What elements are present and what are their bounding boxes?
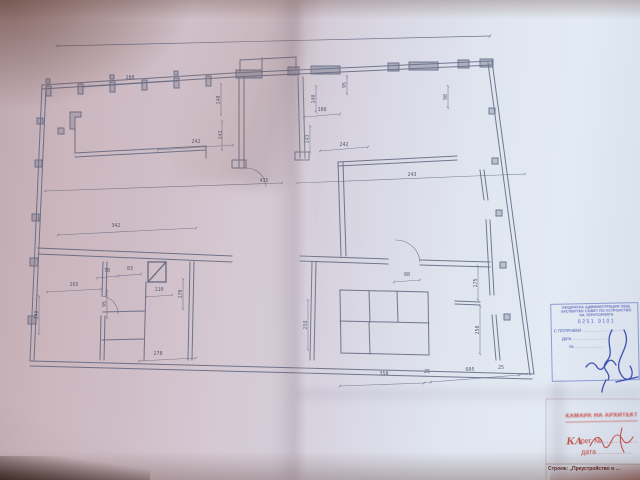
- dimension-label: 25: [424, 369, 430, 375]
- left-wall-pilasters: [28, 118, 43, 324]
- dimension-label: 342: [111, 223, 120, 229]
- dimension-label: 278: [153, 351, 162, 357]
- dimension-label: 88: [404, 272, 410, 278]
- dimension-label: 148: [34, 310, 40, 319]
- dimension-label: 435: [259, 178, 268, 184]
- dimension-label: 143: [218, 130, 224, 139]
- dimension-label: 95: [102, 301, 108, 307]
- dark-corner-bottom-left: [0, 456, 150, 480]
- dimension-label: 243: [407, 172, 416, 178]
- dimension-label: 170: [178, 289, 184, 298]
- paper-fold-main: [272, 0, 320, 480]
- dimension-label: 358: [379, 371, 388, 377]
- dark-corner-bottom-right: [550, 464, 640, 480]
- dimension-label: 288: [125, 75, 134, 81]
- dimension-label: 95: [342, 82, 348, 88]
- dimension-label: 25: [498, 365, 504, 371]
- dimension-label: 175: [473, 278, 479, 287]
- dimension-label: 250: [475, 325, 481, 334]
- dimension-label: 242: [191, 139, 200, 145]
- dimension-label: 242: [339, 142, 348, 148]
- dimension-label: 83: [127, 266, 133, 272]
- photo-of-floorplan: 288 242 140 143 140 188 143 242 95 90 43…: [0, 0, 640, 480]
- paper-crease-horizontal: [295, 386, 640, 402]
- dimension-label: 90: [443, 94, 449, 100]
- right-wall-pilasters: [489, 108, 510, 320]
- dimension-label: 110: [154, 287, 163, 293]
- dimension-label: 265: [69, 282, 78, 288]
- dimension-label: 605: [465, 367, 474, 373]
- stage-grid: [340, 290, 429, 355]
- door-swing-arc: [396, 240, 420, 262]
- floor-plan-drawing: 288 242 140 143 140 188 143 242 95 90 43…: [0, 0, 640, 480]
- dimension-label: 78: [104, 268, 110, 274]
- dimension-label: 140: [216, 95, 222, 104]
